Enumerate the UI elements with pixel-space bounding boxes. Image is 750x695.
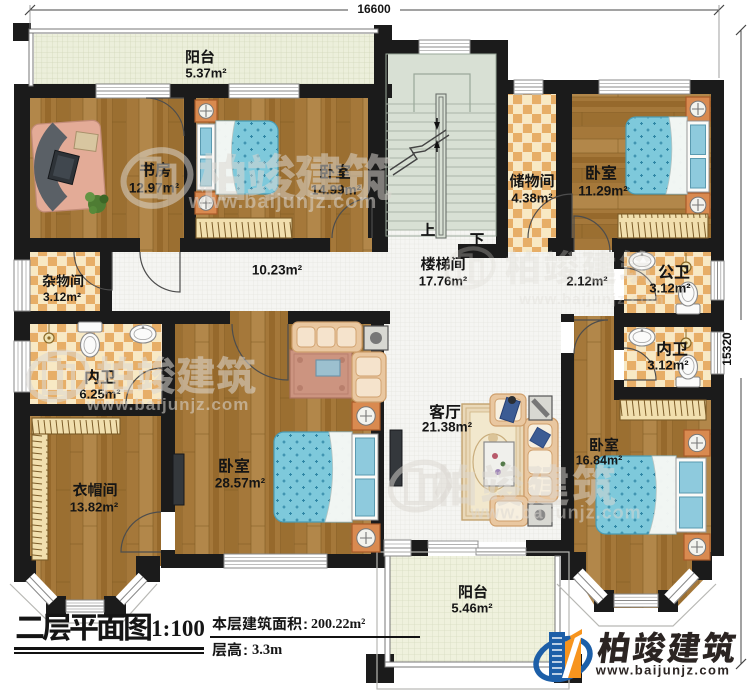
svg-text:13.82m²: 13.82m² (70, 500, 119, 515)
svg-text:16600: 16600 (357, 2, 391, 16)
svg-text:5.37m²: 5.37m² (185, 66, 227, 81)
svg-text:www.baijunjz.com: www.baijunjz.com (86, 395, 250, 414)
svg-text:5.46m²: 5.46m² (451, 601, 493, 616)
svg-text:3.12m²: 3.12m² (647, 358, 689, 373)
svg-text::: : (243, 642, 248, 659)
svg-text:3.12m²: 3.12m² (43, 290, 81, 304)
svg-text:1:100: 1:100 (151, 616, 205, 641)
svg-text:15320: 15320 (720, 332, 734, 366)
svg-text:21.38m²: 21.38m² (422, 420, 473, 435)
svg-text::: : (303, 616, 308, 633)
svg-text:11.29m²: 11.29m² (578, 184, 628, 199)
svg-text:3.3m: 3.3m (252, 642, 282, 658)
svg-text:www.baijunjz.com: www.baijunjz.com (188, 191, 378, 213)
svg-text:www.baijunjz.com: www.baijunjz.com (469, 502, 641, 522)
svg-text:10.23m²: 10.23m² (252, 263, 303, 278)
svg-text:200.22m²: 200.22m² (311, 617, 365, 632)
svg-text:4.38m²: 4.38m² (511, 191, 553, 206)
svg-text:www.baijunjz.com: www.baijunjz.com (595, 663, 731, 678)
svg-text:28.57m²: 28.57m² (215, 476, 266, 491)
svg-text:www.baijunjz.com: www.baijunjz.com (518, 291, 664, 308)
